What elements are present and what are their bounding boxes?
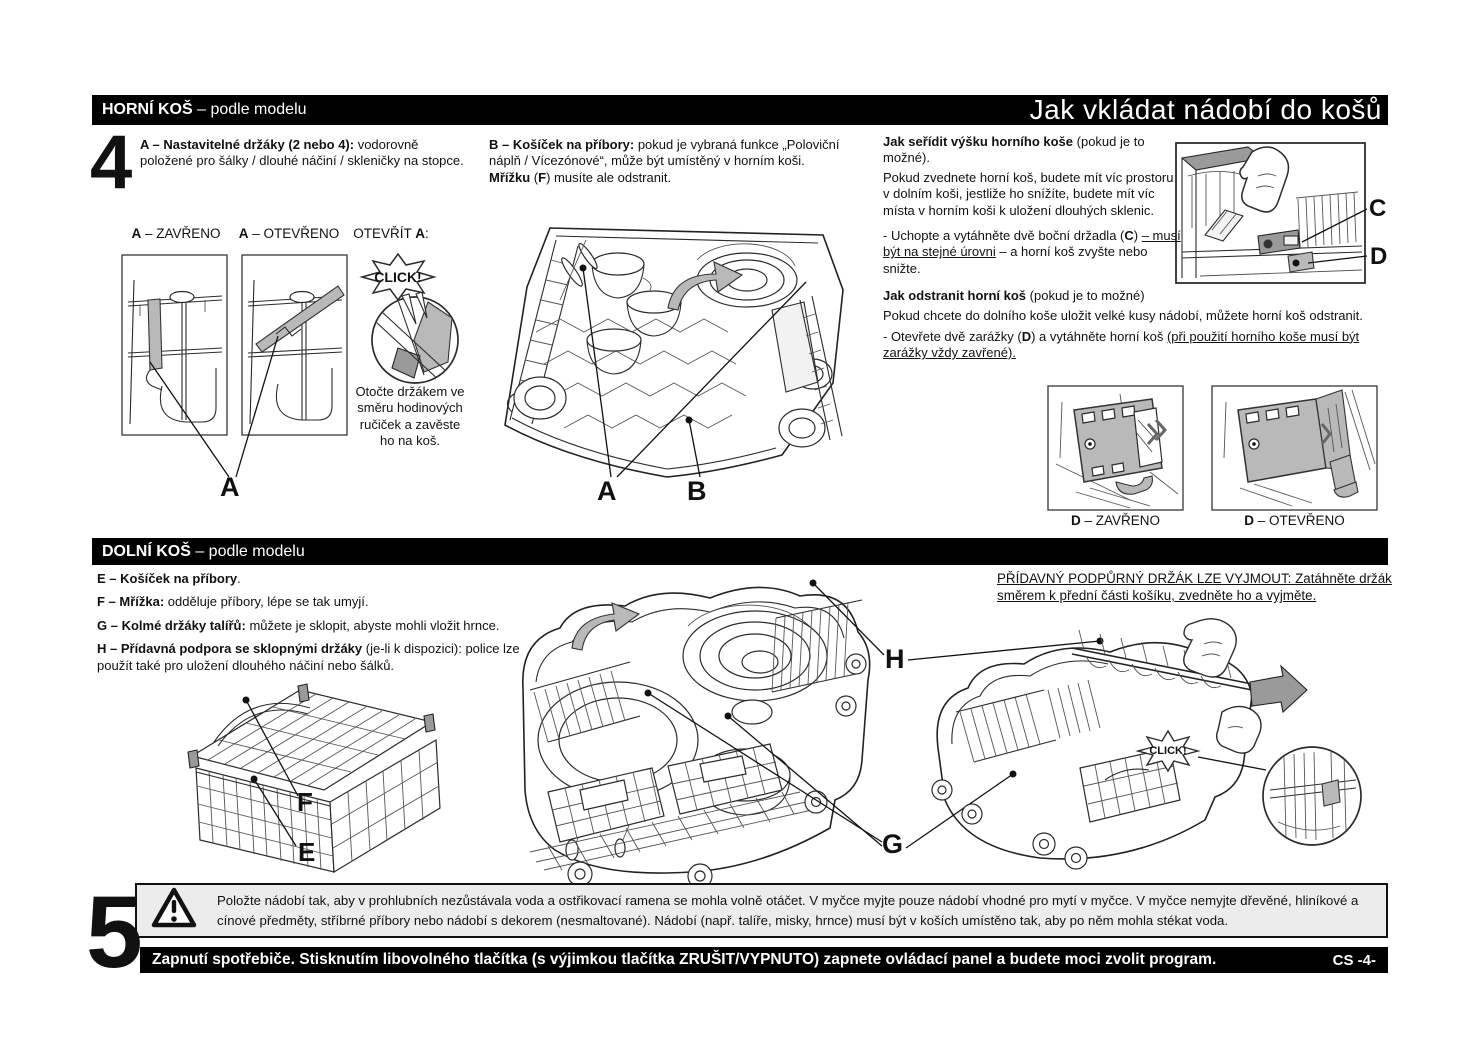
illustration-holder-a-open (242, 255, 347, 435)
caption-d-closed-letter: D (1071, 513, 1081, 528)
adjust-heading: Jak seřídit výšku horního koše (pokud je… (883, 134, 1183, 167)
adjust-paragraph: Pokud zvednete horní koš, budete mít víc… (883, 170, 1183, 219)
caption-open-a-pre: OTEVŘÍT (353, 226, 415, 241)
upper-section-bar: HORNÍ KOŠ – podle modelu Jak vkládat nád… (92, 95, 1388, 125)
caption-d-open: D – OTEVŘENO (1212, 513, 1377, 528)
upper-section-title-rest: – podle modelu (193, 101, 307, 118)
item-g-bold: G – Kolmé držáky talířů: (97, 618, 246, 633)
illustration-holder-a-closed (122, 255, 227, 435)
remove-heading-bold: Jak odstranit horní koš (883, 288, 1026, 303)
page-number: CS -4- (1333, 952, 1376, 969)
page-title: Jak vkládat nádobí do košů (1030, 94, 1388, 126)
caption-d-closed: D – ZAVŘENO (1048, 513, 1183, 528)
adjust-height-block: Jak seřídit výšku horního koše (pokud je… (883, 134, 1183, 277)
remove-instruction-mid: ) a vytáhněte horní koš (1031, 329, 1167, 344)
caption-a-closed: A – ZAVŘENO (126, 226, 226, 241)
item-b-bold2: Mřížku (489, 170, 530, 185)
lower-items-list: E – Košíček na příbory. F – Mřížka: oddě… (97, 571, 557, 674)
item-a-description: A – Nastavitelné držáky (2 nebo 4): vodo… (140, 137, 470, 170)
label-h: H (885, 646, 905, 673)
label-g: G (882, 831, 903, 858)
item-f-bold: F – Mřížka: (97, 594, 164, 609)
item-g-rest: můžete je sklopit, abyste mohli vložit h… (246, 618, 500, 633)
rotate-note: Otočte držákem ve směru hodinových ručič… (352, 384, 468, 450)
caption-a-closed-letter: A (131, 226, 141, 241)
item-h-bold: H – Přídavná podpora se sklopnými držáky (97, 641, 362, 656)
remove-basket-block: Jak odstranit horní koš (pokud je to mož… (883, 288, 1385, 362)
item-h-description: H – Přídavná podpora se sklopnými držáky… (97, 641, 557, 674)
click-label-lower: CLICK! (1141, 745, 1195, 757)
lower-section-title-rest: – podle modelu (191, 543, 305, 560)
item-e-description: E – Košíček na příbory. (97, 571, 557, 587)
removable-support-note: PŘÍDAVNÝ PODPŮRNÝ DRŽÁK LZE VYJMOUT: Zat… (997, 570, 1392, 604)
label-f: F (297, 789, 313, 815)
caption-a-closed-text: – ZAVŘENO (141, 226, 220, 241)
illustration-d-closed (1048, 386, 1183, 510)
warning-box: Položte nádobí tak, aby v prohlubních ne… (135, 883, 1388, 938)
label-c: C (1369, 197, 1386, 221)
adjust-instruction-pre: - Uchopte a vytáhněte dvě boční držadla … (883, 228, 1124, 243)
warning-icon (151, 887, 197, 934)
caption-d-open-text: – OTEVŘENO (1254, 513, 1345, 528)
item-g-description: G – Kolmé držáky talířů: můžete je sklop… (97, 618, 557, 634)
manual-page: HORNÍ KOŠ – podle modelu Jak vkládat nád… (0, 0, 1477, 1063)
warning-text: Položte nádobí tak, aby v prohlubních ne… (217, 891, 1386, 931)
lower-section-title-bold: DOLNÍ KOŠ (102, 543, 191, 560)
caption-open-a-post: : (425, 226, 429, 241)
lower-section-bar: DOLNÍ KOŠ – podle modelu (92, 538, 1388, 565)
label-b-basket: B (687, 478, 707, 505)
remove-instruction: - Otevřete dvě zarážky (D) a vytáhněte h… (883, 329, 1385, 362)
remove-instruction-letter: D (1022, 329, 1031, 344)
label-a-holders: A (220, 474, 240, 501)
click-label-upper: CLICK! (366, 269, 430, 285)
upper-section-title-bold: HORNÍ KOŠ (102, 101, 193, 118)
adjust-heading-bold: Jak seřídit výšku horního koše (883, 134, 1073, 149)
lower-section-title: DOLNÍ KOŠ – podle modelu (92, 543, 305, 561)
adjust-instruction-letter: C (1124, 228, 1133, 243)
illustration-d-open (1212, 386, 1377, 510)
item-f-rest: odděluje příbory, lépe se tak umyjí. (164, 594, 368, 609)
item-b-rest3: ) musíte ale odstranit. (546, 170, 671, 185)
label-e: E (298, 839, 315, 865)
caption-d-open-letter: D (1244, 513, 1254, 528)
remove-instruction-pre: - Otevřete dvě zarážky ( (883, 329, 1022, 344)
remove-heading-rest: (pokud je to možné) (1026, 288, 1145, 303)
item-b-bold: B – Košíček na příbory: (489, 137, 634, 152)
label-a-basket: A (597, 478, 617, 505)
step-number-5: 5 (86, 886, 143, 980)
caption-open-a-letter: A (415, 226, 425, 241)
remove-heading: Jak odstranit horní koš (pokud je to mož… (883, 288, 1385, 304)
illustration-support-removal (932, 619, 1361, 869)
item-a-bold: A – Nastavitelné držáky (2 nebo 4): (140, 137, 354, 152)
step-number-4: 4 (90, 128, 132, 198)
item-b-description: B – Košíček na příbory: pokud je vybraná… (489, 137, 841, 186)
caption-a-open-text: – OTEVŘENO (248, 226, 339, 241)
upper-section-title: HORNÍ KOŠ – podle modelu (92, 101, 307, 119)
adjust-instruction: - Uchopte a vytáhněte dvě boční držadla … (883, 228, 1183, 277)
item-b-bold3: F (538, 170, 546, 185)
label-d: D (1370, 245, 1387, 269)
illustration-lower-basket (523, 580, 1104, 889)
footer-text: Zapnutí spotřebiče. Stisknutím libovolné… (152, 951, 1216, 969)
caption-d-closed-text: – ZAVŘENO (1081, 513, 1160, 528)
item-f-description: F – Mřížka: odděluje příbory, lépe se ta… (97, 594, 557, 610)
caption-open-a: OTEVŘÍT A: (346, 226, 436, 241)
footer-bar: Zapnutí spotřebiče. Stisknutím libovolné… (140, 947, 1388, 973)
item-e-rest: . (237, 571, 241, 586)
item-e-bold: E – Košíček na příbory (97, 571, 237, 586)
item-b-rest2: ( (530, 170, 538, 185)
illustration-upper-basket (505, 228, 843, 477)
remove-paragraph: Pokud chcete do dolního koše uložit velk… (883, 308, 1385, 324)
illustration-adjust-height (1176, 143, 1367, 283)
adjust-instruction-mid: ) (1134, 228, 1142, 243)
caption-a-open: A – OTEVŘENO (234, 226, 344, 241)
